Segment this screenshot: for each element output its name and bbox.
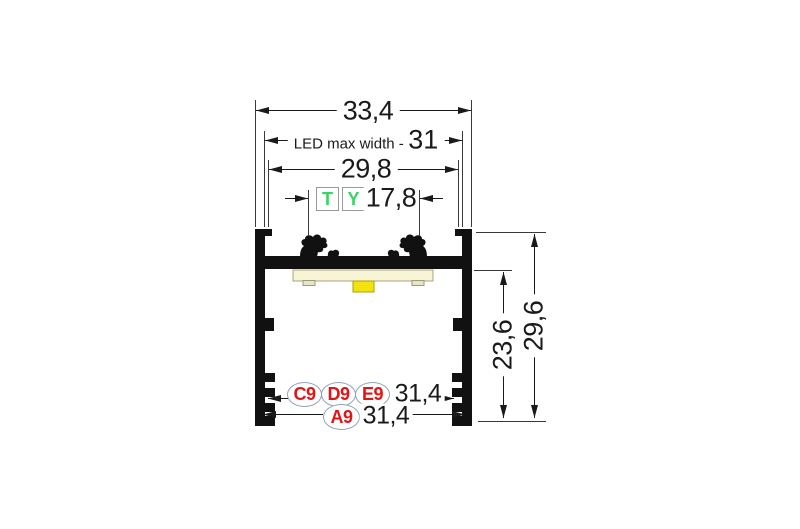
accessory-link-d9-label: D9	[327, 384, 349, 405]
cover-link-y-label: Y	[347, 189, 359, 210]
technical-drawing	[0, 0, 800, 529]
dim-overall-width: 33,4	[337, 98, 400, 125]
dim-cavity-depth: 23,6	[490, 314, 517, 377]
dim-led-max-width: LED max width - 31	[288, 127, 445, 154]
accessory-link-c9-label: C9	[293, 384, 315, 405]
dim-cover-width-row2: 31,4	[360, 404, 413, 429]
dim-clip-spacing: 17,8	[364, 185, 419, 212]
mounting-clip-left	[300, 234, 339, 257]
cover-link-t[interactable]: T	[316, 187, 339, 211]
accessory-link-a9-label: A9	[330, 407, 352, 428]
accessory-link-c9[interactable]: C9	[287, 382, 322, 407]
dim-opening-width: 29,8	[335, 156, 398, 183]
led-chip	[353, 281, 374, 292]
dim-led-max-width-value: 31	[408, 125, 438, 155]
dim-overall-height: 29,6	[521, 295, 548, 358]
accessory-link-a9[interactable]: A9	[323, 404, 360, 430]
profile-drawing-canvas: 33,4 LED max width - 31 29,8 T Y 17,8 23…	[0, 0, 800, 529]
cover-link-y[interactable]: Y	[342, 187, 365, 211]
dim-led-max-width-label: LED max width -	[294, 136, 404, 153]
mounting-clip-right	[388, 234, 427, 257]
cover-link-t-label: T	[322, 189, 333, 210]
